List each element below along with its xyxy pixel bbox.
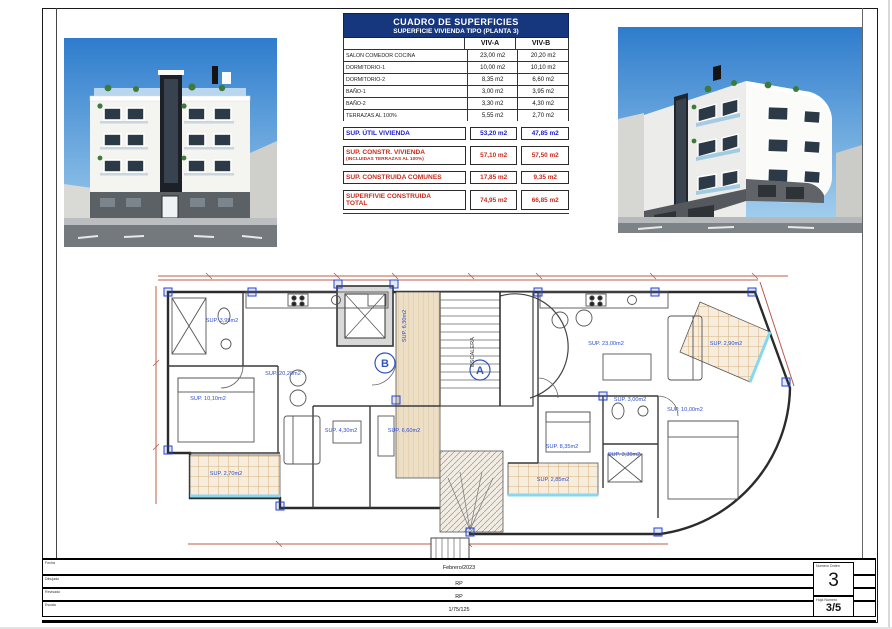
surfaces-table-header: CUADRO DE SUPERFICIES SUPERFICIE VIVIEND… xyxy=(343,13,569,38)
numero-orden-cell: Numero Orden 3 xyxy=(813,562,854,596)
revisado-value: RP xyxy=(43,594,875,600)
table-title: CUADRO DE SUPERFICIES xyxy=(344,17,568,27)
summary-construida-row: SUP. CONSTR. VIVIENDA (INCLUIDAS TERRAZA… xyxy=(343,146,569,165)
table-row: BAÑO-1 3,00 m2 3,95 m2 xyxy=(343,85,569,97)
fecha-value: Febrero/2023 xyxy=(43,565,875,571)
table-row: TERRAZAS AL 100% 5,55 m2 2,70 m2 xyxy=(343,109,569,121)
room-label: SUP. 2,70m2 xyxy=(210,471,243,477)
scan-edge xyxy=(888,0,890,629)
col-viv-a: VIV-A xyxy=(464,38,515,49)
unit-b-marker: B xyxy=(381,358,389,370)
render-front-elevation-image xyxy=(64,38,277,247)
room-label: SUP. 6,60m2 xyxy=(388,428,421,434)
table-row: SALON COMEDOR COCINA 23,00 m2 20,20 m2 xyxy=(343,49,569,61)
drawing-sheet: CUADRO DE SUPERFICIES SUPERFICIE VIVIEND… xyxy=(0,0,892,629)
room-label: SUP. 20,20m2 xyxy=(265,371,301,377)
table-column-headers: VIV-A VIV-B xyxy=(343,38,569,49)
table-row: DORMITORIO-1 10,00 m2 10,10 m2 xyxy=(343,61,569,73)
numero-orden-value: 3 xyxy=(814,570,853,592)
table-row: DORMITORIO-2 8,35 m2 6,60 m2 xyxy=(343,73,569,85)
room-label: SUP. 4,30m2 xyxy=(325,428,358,434)
numero-orden-label: Numero Orden xyxy=(814,563,853,568)
room-label: SUP. 3,95m2 xyxy=(206,318,239,324)
room-label: SUP. 10,10m2 xyxy=(190,396,226,402)
room-label: SUP. 3,00m2 xyxy=(614,397,647,403)
col-viv-b: VIV-B xyxy=(515,38,566,49)
room-label: SUP. 10,00m2 xyxy=(667,407,703,413)
table-subtitle: SUPERFICIE VIVIENDA TIPO (PLANTA 3) xyxy=(344,28,568,35)
room-label: SUP. 2,85m2 xyxy=(537,477,570,483)
summary-total-row: SUPERFIVIE CONSTRUIDA TOTAL 74,95 m2 66,… xyxy=(343,190,569,210)
summary-util-row: SUP. ÚTIL VIVIENDA 53,20 m2 47,85 m2 xyxy=(343,127,569,140)
unit-a-marker: A xyxy=(476,365,484,377)
stair-label: ESCALERA xyxy=(470,337,476,367)
room-label: SUP. 2,90m2 xyxy=(710,341,743,347)
hoja-numero-value: 3/5 xyxy=(814,602,853,614)
summary-comunes-row: SUP. CONSTRUIDA COMUNES 17,85 m2 9,35 m2 xyxy=(343,171,569,184)
meta-column: Fecha Febrero/2023 Dibujado RP Revisado … xyxy=(42,559,82,614)
sheet-frame-inner-left xyxy=(56,8,57,621)
room-label: SUP. 6,30m2 xyxy=(402,310,408,343)
staircase xyxy=(440,292,533,406)
hoja-numero-cell: Hoja Numero 3/5 xyxy=(813,596,854,617)
room-label: SUP. 3,30m2 xyxy=(608,452,641,458)
floor-plan: B A SUP. 3,95m2 SUP. 20,20m2 SUP. 10,10m… xyxy=(148,266,796,552)
table-row: BAÑO-2 3,30 m2 4,30 m2 xyxy=(343,97,569,109)
dibujado-value: RP xyxy=(43,581,875,587)
sheet-frame-inner-right xyxy=(862,8,863,621)
room-label: SUP. 8,35m2 xyxy=(546,444,579,450)
room-label: SUP. 23,00m2 xyxy=(588,341,624,347)
surfaces-table: CUADRO DE SUPERFICIES SUPERFICIE VIVIEND… xyxy=(343,13,569,214)
render-corner-perspective-image xyxy=(618,27,862,233)
title-block: Expediente/Forma RR-342-20 SITUACION: PR… xyxy=(42,558,876,623)
escala-value: 1/75/125 xyxy=(43,607,875,613)
